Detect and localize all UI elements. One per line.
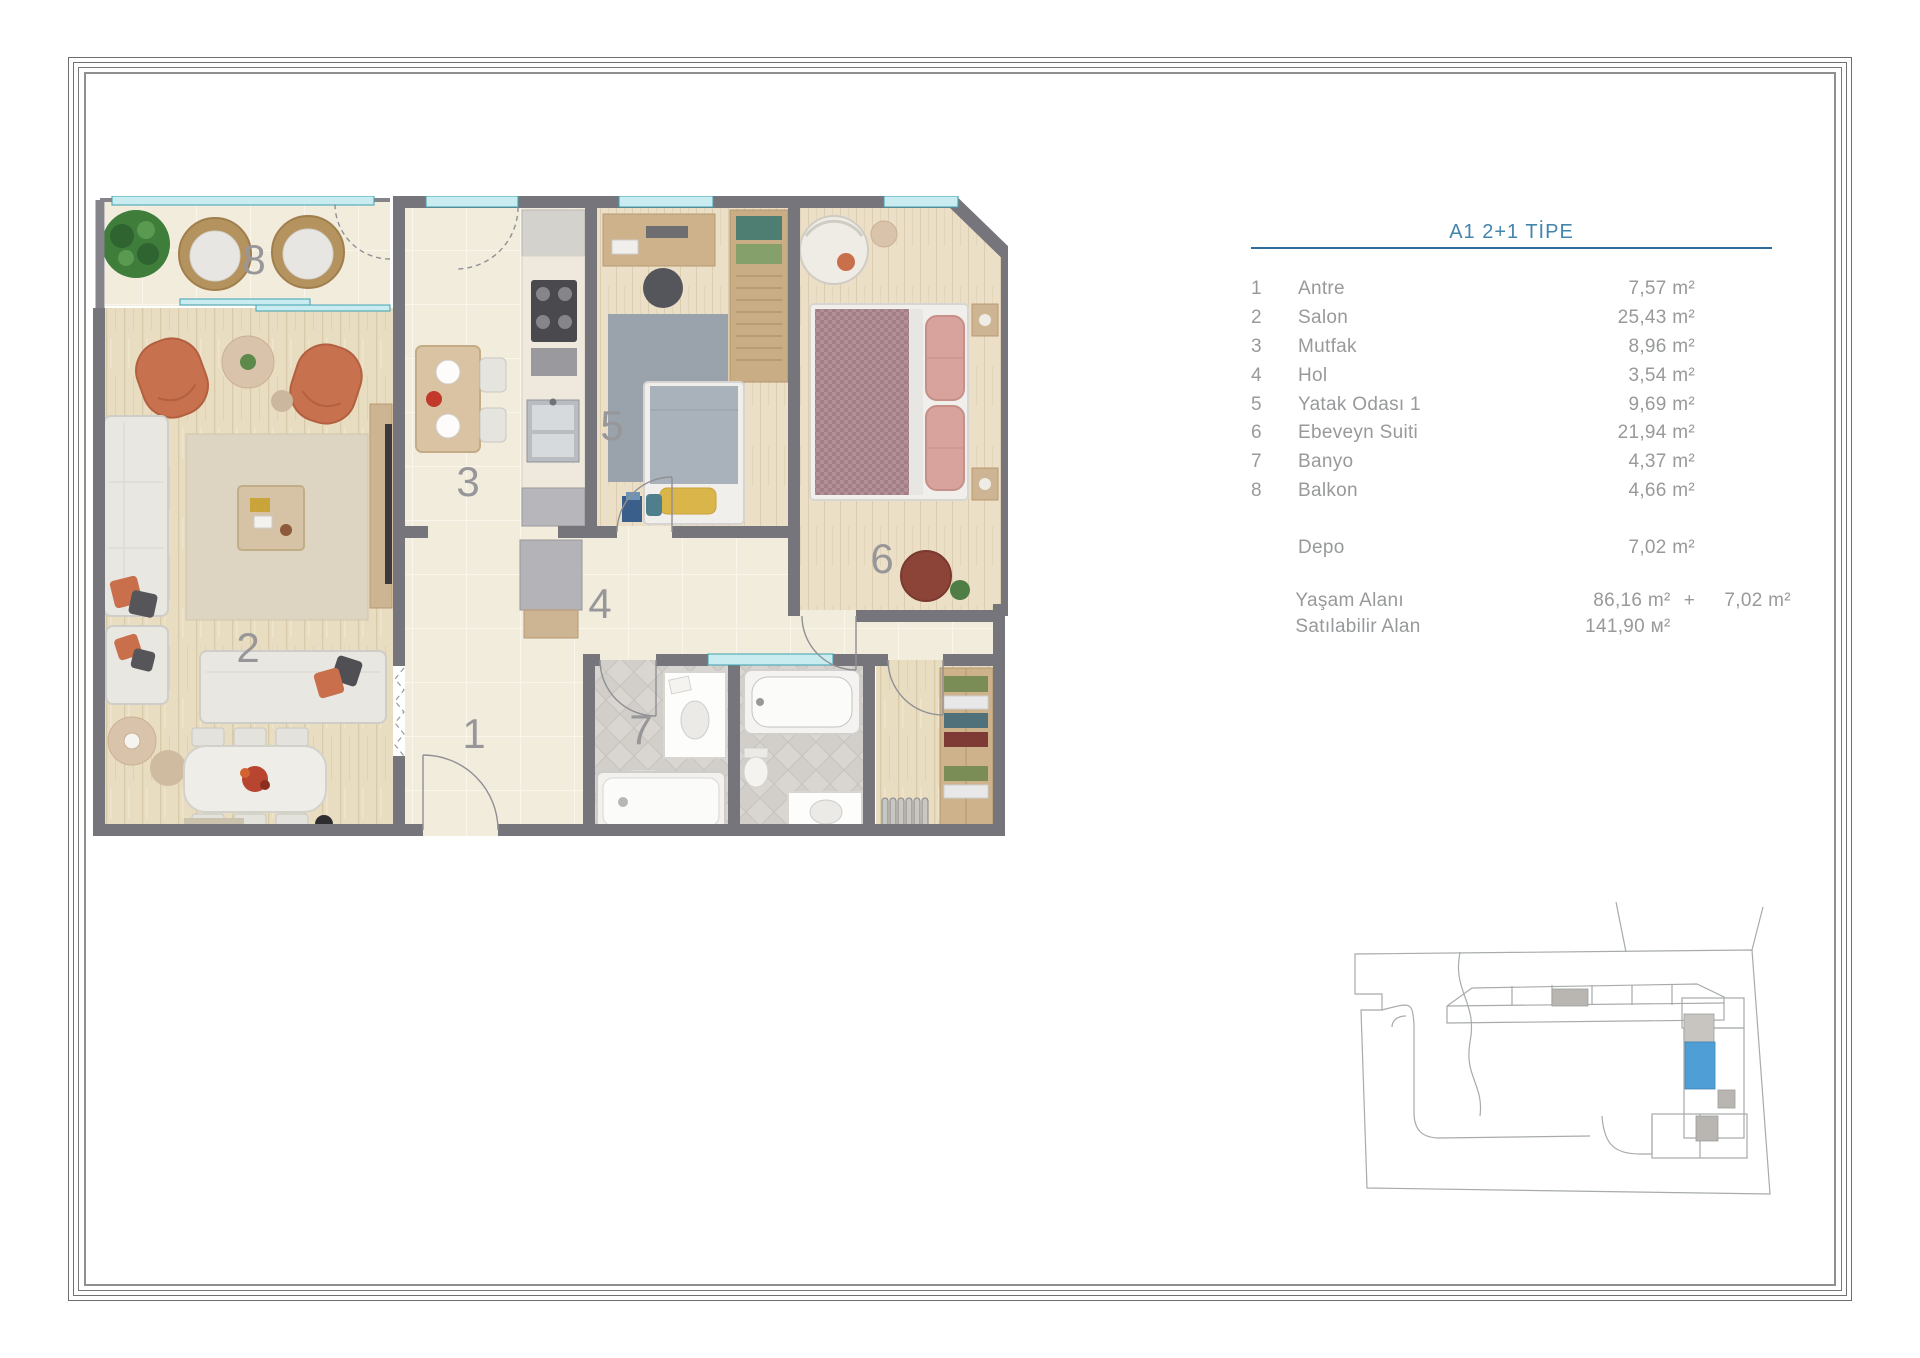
sink (527, 399, 579, 463)
plant (102, 210, 170, 278)
room-number: 4 (1251, 365, 1298, 387)
room-label-mutfak: 3 (456, 458, 479, 505)
total-value: 141,90 м² (1501, 616, 1671, 638)
total-label: Satılabilir Alan (1295, 616, 1500, 638)
room-name: Hol (1298, 365, 1515, 387)
room-name: Salon (1298, 307, 1515, 329)
total-value-2: 7,02 m² (1708, 590, 1800, 612)
coat-area-marker (395, 668, 404, 756)
room-area: 8,96 m² (1515, 336, 1695, 358)
total-label: Yaşam Alanı (1295, 590, 1500, 612)
total-row: Satılabilir Alan 141,90 м² (1251, 614, 1800, 640)
gray-unit (1718, 1090, 1735, 1108)
oven (531, 348, 577, 376)
wardrobe (730, 210, 788, 382)
total-value: 86,16 m² (1501, 590, 1671, 612)
site-key-plan (1352, 902, 1772, 1204)
room-area: 4,37 m² (1515, 451, 1695, 473)
bathroom-sink (664, 672, 726, 758)
legend-row: 6 Ebeveyn Suiti 21,94 m² (1251, 419, 1800, 448)
legend-row: 8 Balkon 4,66 m² (1251, 477, 1800, 506)
shower-tub (597, 772, 725, 832)
room-name: Yatak Odası 1 (1298, 394, 1515, 416)
window-balcony-door (180, 299, 310, 305)
room-name: Ebeveyn Suiti (1298, 422, 1515, 444)
chaise (106, 626, 168, 704)
room-number: 7 (1251, 451, 1298, 473)
legend-row: 4 Hol 3,54 m² (1251, 361, 1800, 390)
coffee-table (238, 486, 304, 550)
room-area: 9,69 m² (1515, 394, 1695, 416)
legend-row: 5 Yatak Odası 1 9,69 m² (1251, 390, 1800, 419)
room-number: 5 (1251, 394, 1298, 416)
legend-rows: 1 Antre 7,57 m² 2 Salon 25,43 m² 3 Mutfa… (1251, 275, 1800, 562)
room-label-ebeveyn: 6 (870, 535, 893, 582)
inner-road (1382, 1005, 1590, 1138)
floor-plan: 8 2 3 5 4 6 1 7 (88, 196, 1008, 840)
room-name: Depo (1298, 537, 1515, 559)
window-kitchen (426, 196, 518, 207)
window-bedroom1 (619, 196, 713, 207)
title-rule (1251, 247, 1772, 249)
room-label-antre: 1 (462, 710, 485, 757)
stove (531, 280, 577, 342)
curved-road (1458, 952, 1480, 1116)
window-master (884, 196, 958, 207)
plus-sign: + (1671, 590, 1709, 612)
gray-unit (1684, 1014, 1714, 1042)
double-bed (810, 304, 968, 500)
floor-plan-sheet: { "legend": { "title": "A1 2+1 TİPE", "r… (0, 0, 1920, 1358)
legend: A1 2+1 TİPE 1 Antre 7,57 m² 2 Salon 25,4… (1251, 220, 1800, 640)
window-balcony-door (256, 305, 390, 311)
room-area: 25,43 m² (1515, 307, 1695, 329)
total-row: Yaşam Alanı 86,16 m² + 7,02 m² (1251, 588, 1800, 614)
plan-title: A1 2+1 TİPE (1251, 220, 1772, 244)
room-area: 7,57 m² (1515, 278, 1695, 300)
room-number: 6 (1251, 422, 1298, 444)
entry-closet (520, 540, 582, 610)
room-number: 1 (1251, 278, 1298, 300)
glass-sliding-door (708, 654, 833, 665)
legend-row: 2 Salon 25,43 m² (1251, 304, 1800, 333)
room-area: 4,66 m² (1515, 480, 1695, 502)
inner-road (1392, 1016, 1406, 1027)
room-number: 3 (1251, 336, 1298, 358)
side-table (271, 390, 293, 412)
room-area: 3,54 m² (1515, 365, 1695, 387)
toilet (744, 748, 768, 787)
room-number: 2 (1251, 307, 1298, 329)
room-area: 21,94 m² (1515, 422, 1695, 444)
window-balcony-top (112, 196, 374, 205)
legend-row: 1 Antre 7,57 m² (1251, 275, 1800, 304)
room-label-balkon: 8 (242, 236, 265, 283)
closet-shelves (940, 668, 993, 828)
sofa-left (104, 416, 168, 618)
highlighted-unit (1685, 1042, 1715, 1089)
gray-unit (1696, 1116, 1718, 1141)
tv-unit (370, 404, 392, 608)
gray-unit (1552, 989, 1588, 1006)
room-name: Balkon (1298, 480, 1515, 502)
room-label-salon: 2 (236, 624, 259, 671)
room-name: Mutfak (1298, 336, 1515, 358)
road-line (1616, 902, 1626, 952)
legend-row-depo: Depo 7,02 m² (1251, 533, 1800, 562)
round-table (150, 750, 186, 786)
shoe-cabinet (524, 610, 578, 638)
room-number: 8 (1251, 480, 1298, 502)
lower-wing (1602, 1116, 1652, 1154)
bathtub (744, 670, 860, 734)
room-label-hol: 4 (588, 580, 611, 627)
fridge (522, 210, 585, 256)
room-area: 7,02 m² (1515, 537, 1695, 559)
sofa-main (200, 651, 386, 723)
kitchen-cabinet (522, 488, 585, 526)
legend-totals: Yaşam Alanı 86,16 m² + 7,02 m² Satılabil… (1251, 588, 1800, 640)
room-name: Antre (1298, 278, 1515, 300)
dining-table (184, 728, 326, 830)
legend-row: 3 Mutfak 8,96 m² (1251, 333, 1800, 362)
room-label-yatak: 5 (600, 402, 623, 449)
wicker-chair (272, 216, 344, 288)
legend-row: 7 Banyo 4,37 m² (1251, 448, 1800, 477)
room-name: Banyo (1298, 451, 1515, 473)
road-line (1752, 907, 1763, 950)
wicker-chair (179, 218, 251, 290)
desk-chair (643, 268, 683, 308)
room-label-banyo: 7 (629, 706, 652, 753)
